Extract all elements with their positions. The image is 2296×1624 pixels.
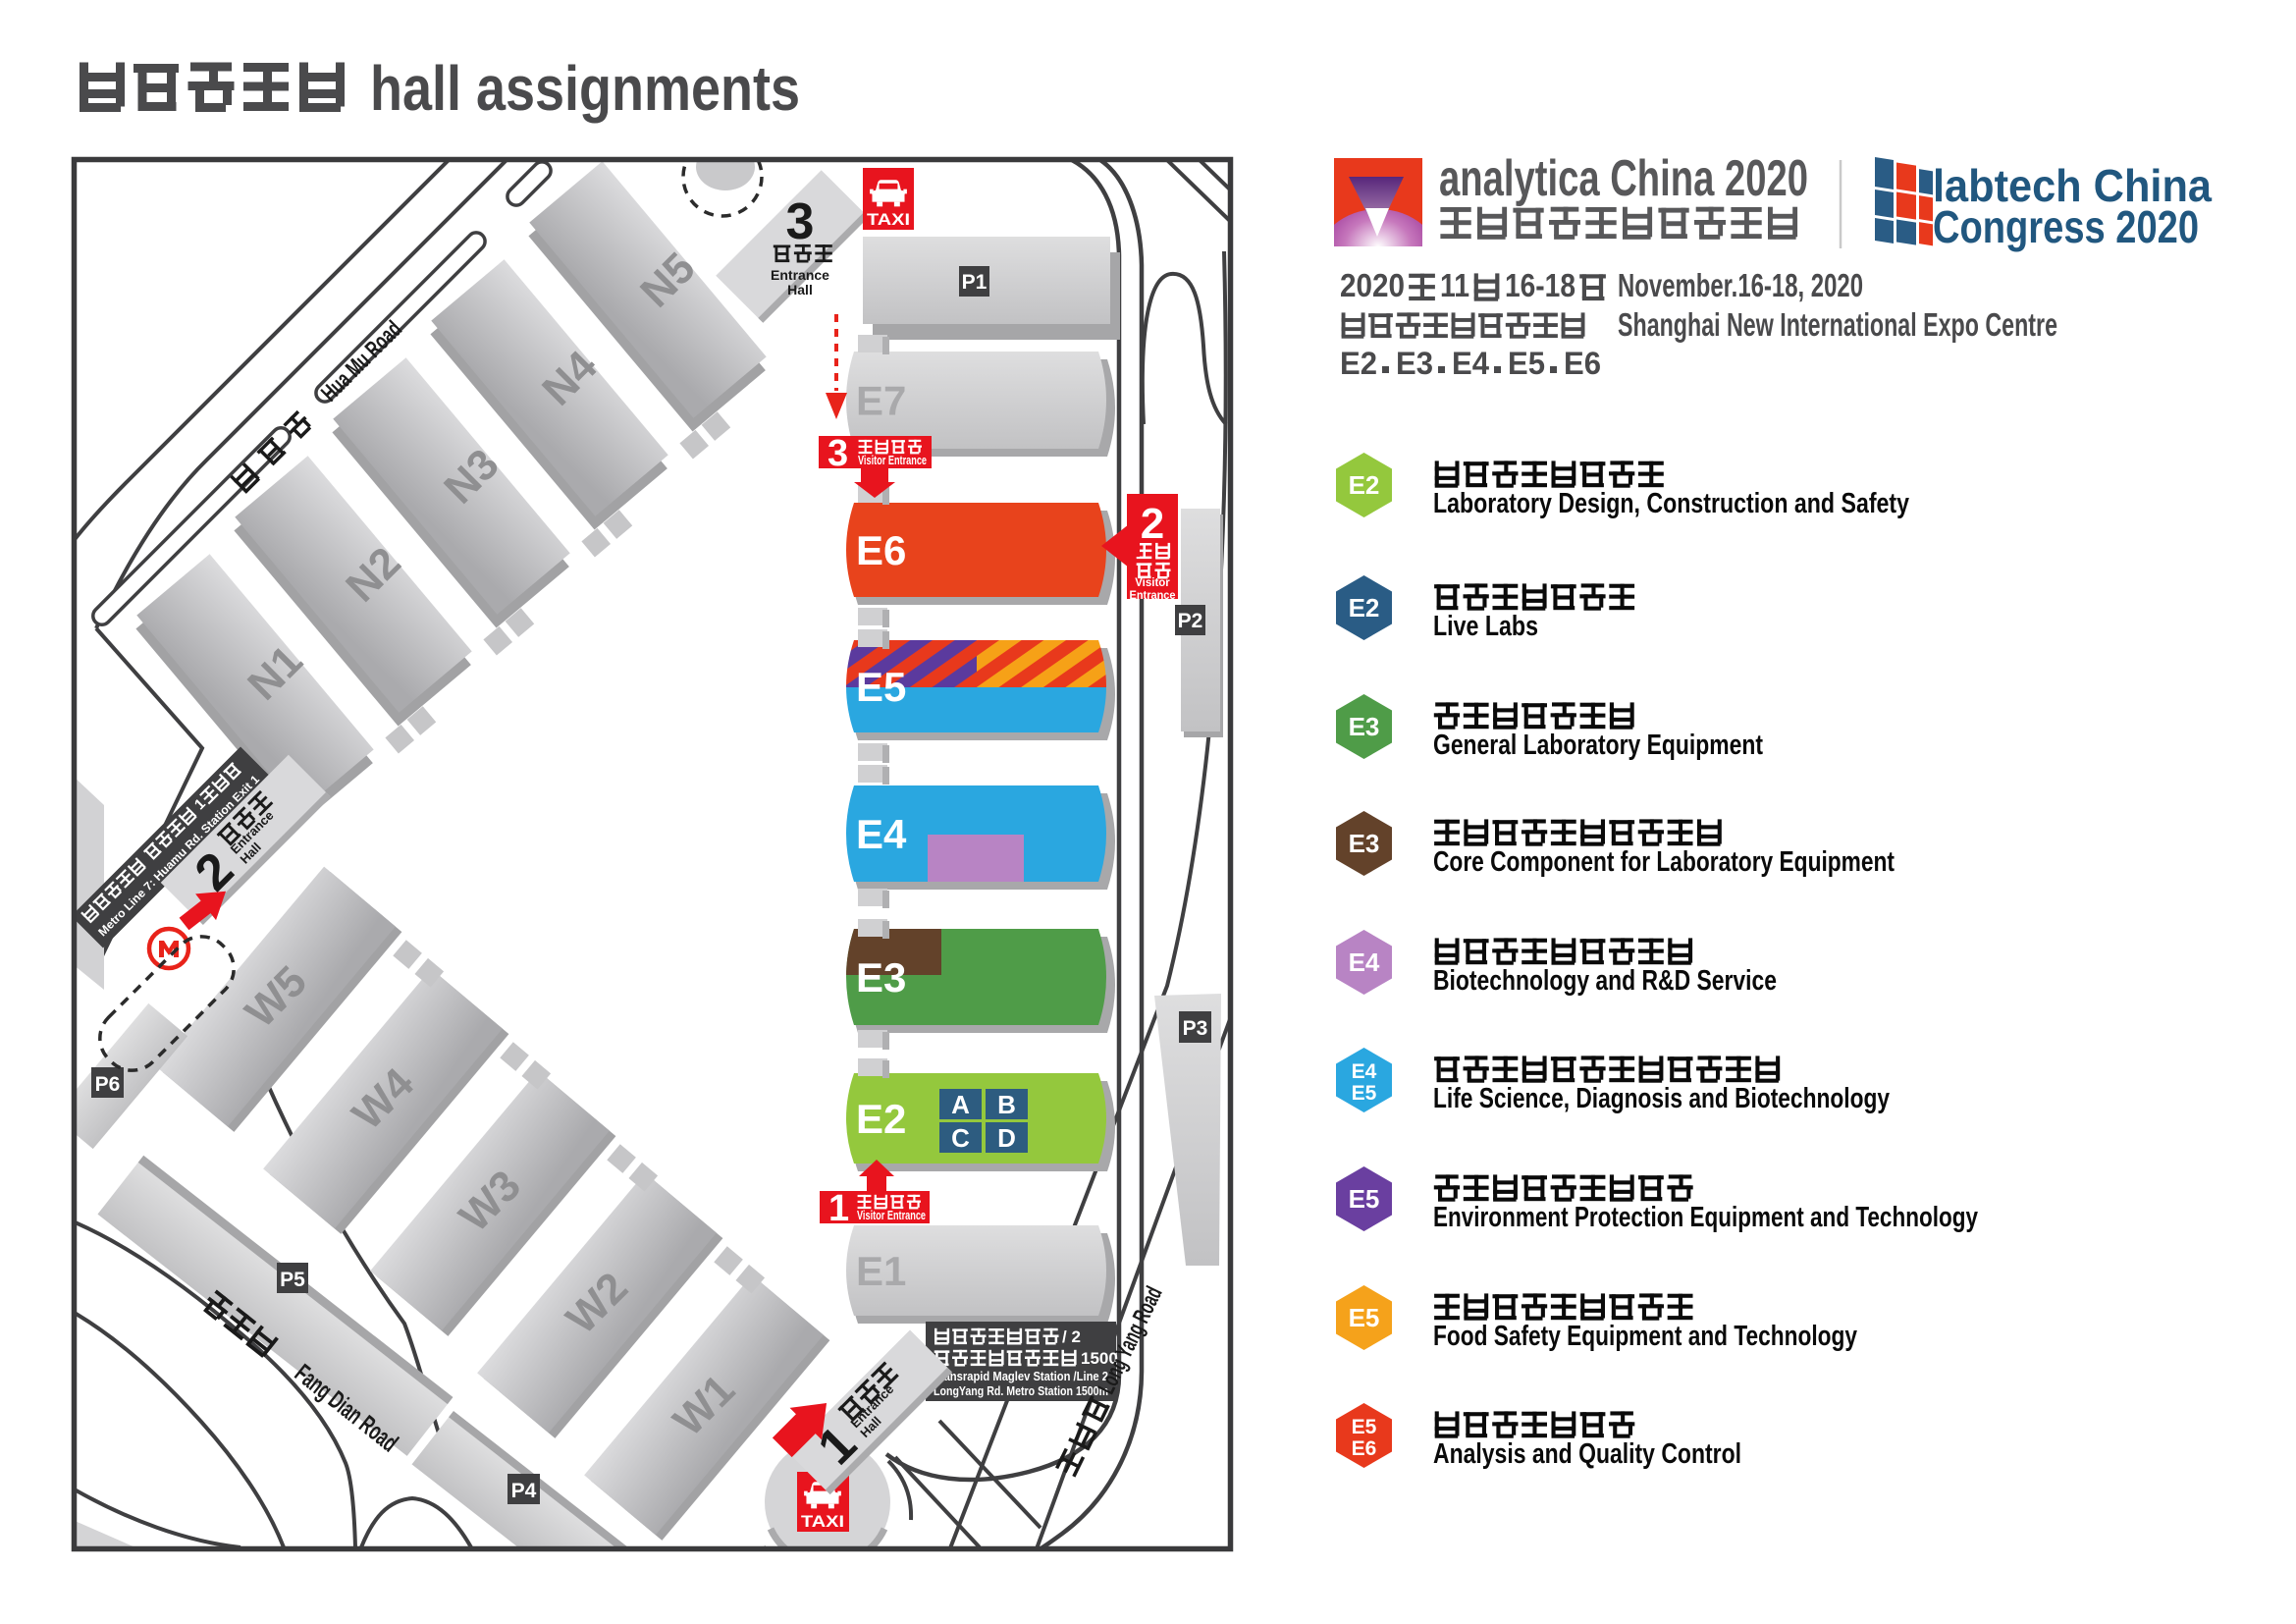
svg-text:11: 11: [1440, 267, 1469, 303]
svg-text:P3: P3: [1183, 1017, 1208, 1040]
svg-text:Shanghai New International Exp: Shanghai New International Expo Centre: [1618, 306, 2057, 343]
svg-text:E2: E2: [1349, 593, 1380, 623]
svg-text:E3: E3: [856, 954, 906, 1001]
svg-text:Biotechnology and R&D Service: Biotechnology and R&D Service: [1433, 965, 1777, 997]
svg-text:E5: E5: [1352, 1416, 1377, 1438]
svg-text:Visitor Entrance: Visitor Entrance: [858, 454, 927, 467]
svg-text:E3: E3: [1349, 829, 1380, 858]
svg-text:E5: E5: [1352, 1082, 1377, 1105]
svg-text:E6: E6: [856, 527, 906, 573]
svg-text:Visitor Entrance: Visitor Entrance: [857, 1209, 926, 1222]
svg-text:2: 2: [1141, 500, 1164, 548]
svg-text:E6: E6: [1352, 1437, 1377, 1460]
svg-text:Live Labs: Live Labs: [1433, 611, 1538, 642]
svg-text:E5: E5: [1349, 1303, 1380, 1332]
svg-text:/ 2: / 2: [1062, 1327, 1081, 1346]
svg-text:Hall: Hall: [787, 282, 813, 298]
svg-text:C: C: [951, 1123, 970, 1153]
svg-text:Core Component for Laboratory: Core Component for Laboratory Equipment: [1433, 846, 1895, 878]
svg-text:Visitor: Visitor: [1135, 577, 1170, 589]
svg-text:E3: E3: [1349, 712, 1380, 741]
svg-text:16-18: 16-18: [1505, 267, 1575, 303]
svg-text:Entrance: Entrance: [1130, 590, 1176, 602]
svg-text:E1: E1: [856, 1248, 906, 1294]
svg-text:P5: P5: [280, 1269, 305, 1291]
svg-text:E3: E3: [1396, 346, 1433, 381]
svg-text:P2: P2: [1178, 610, 1203, 632]
svg-text:TAXI: TAXI: [801, 1512, 844, 1531]
svg-text:A: A: [951, 1090, 970, 1119]
svg-text:Entrance: Entrance: [771, 267, 829, 283]
svg-text:P6: P6: [95, 1073, 121, 1096]
svg-text:1: 1: [828, 1188, 849, 1229]
svg-text:analytica China 2020: analytica China 2020: [1439, 150, 1808, 207]
svg-text:Life Science, Diagnosis and Bi: Life Science, Diagnosis and Biotechnolog…: [1433, 1083, 1890, 1114]
svg-text:General Laboratory Equipment: General Laboratory Equipment: [1433, 730, 1763, 761]
svg-text:Congress 2020: Congress 2020: [1933, 201, 2199, 252]
svg-text:E4: E4: [1352, 1060, 1377, 1083]
svg-text:P4: P4: [511, 1480, 537, 1502]
svg-text:D: D: [997, 1123, 1016, 1153]
svg-text:E5: E5: [1508, 346, 1545, 381]
svg-text:E2: E2: [1349, 470, 1380, 500]
svg-text:E4: E4: [1349, 947, 1380, 977]
svg-text:Transrapid Maglev Station /Lin: Transrapid Maglev Station /Line 2: [934, 1369, 1108, 1383]
svg-text:November.16-18, 2020: November.16-18, 2020: [1618, 267, 1863, 303]
svg-text:E5: E5: [856, 664, 906, 710]
svg-text:Environment Protection Equipme: Environment Protection Equipment and Tec…: [1433, 1202, 1978, 1233]
svg-text:E2: E2: [856, 1096, 906, 1142]
svg-text:3: 3: [828, 433, 848, 474]
svg-text:B: B: [997, 1090, 1016, 1119]
svg-text:E4: E4: [1452, 346, 1489, 381]
svg-text:E2: E2: [1340, 346, 1377, 381]
svg-text:E4: E4: [856, 811, 907, 857]
svg-text:LongYang Rd. Metro Station 150: LongYang Rd. Metro Station 1500m: [934, 1383, 1108, 1398]
svg-text:E6: E6: [1564, 346, 1601, 381]
svg-text:TAXI: TAXI: [867, 210, 910, 229]
svg-text:P1: P1: [962, 271, 988, 294]
svg-text:Laboratory Design, Constructio: Laboratory Design, Construction and Safe…: [1433, 488, 1909, 519]
svg-text:3: 3: [786, 193, 815, 250]
svg-text:E5: E5: [1349, 1184, 1380, 1214]
svg-text:hall assignments: hall assignments: [370, 53, 800, 124]
svg-text:E7: E7: [856, 378, 906, 424]
svg-text:2020: 2020: [1340, 267, 1405, 303]
svg-text:Food Safety Equipment and Tech: Food Safety Equipment and Technology: [1433, 1321, 1857, 1352]
svg-text:Analysis and Quality Control: Analysis and Quality Control: [1433, 1438, 1741, 1470]
